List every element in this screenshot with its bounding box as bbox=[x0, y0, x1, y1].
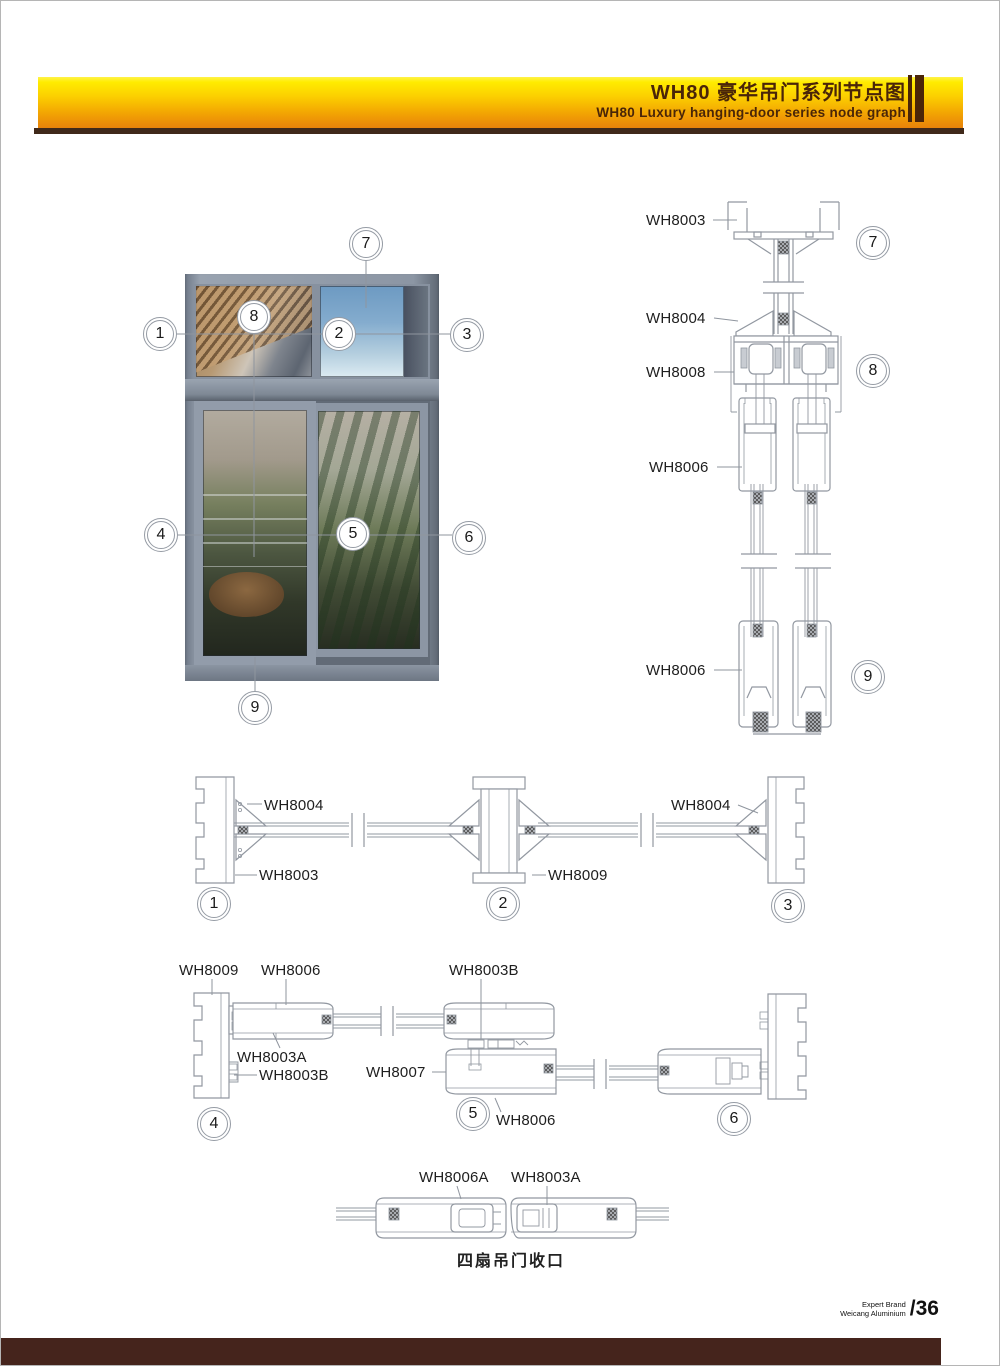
closeup-section-drawing bbox=[331, 1191, 671, 1247]
page-title: WH80 豪华吊门系列节点图 bbox=[596, 82, 906, 105]
profile-label: WH8004 bbox=[264, 797, 324, 814]
profile-label: WH8006 bbox=[649, 459, 709, 476]
header-underline bbox=[34, 128, 964, 134]
callout-1: 1 bbox=[143, 317, 177, 351]
brand-line1: Expert Brand bbox=[862, 1300, 906, 1309]
profile-label: WH8003A bbox=[511, 1169, 581, 1186]
brand-text: Expert Brand Weicang Aluminium bbox=[840, 1300, 906, 1318]
callout-2: 2 bbox=[322, 317, 356, 351]
mid-rail bbox=[185, 379, 439, 401]
profile-label: WH8003 bbox=[646, 212, 706, 229]
footer-bar bbox=[1, 1338, 941, 1366]
section-callout-8: 8 bbox=[856, 354, 890, 388]
callout-6: 6 bbox=[452, 521, 486, 555]
callout-4: 4 bbox=[144, 518, 178, 552]
section-callout-3: 3 bbox=[771, 889, 805, 923]
profile-label: WH8004 bbox=[671, 797, 731, 814]
table-reflection bbox=[209, 572, 284, 616]
profile-label: WH8007 bbox=[366, 1064, 426, 1081]
profile-label: WH8006 bbox=[646, 662, 706, 679]
profile-label: WH8006 bbox=[496, 1112, 556, 1129]
frame-reveal bbox=[404, 286, 428, 377]
door-sash-left bbox=[194, 401, 316, 665]
closeup-caption: 四扇吊门收口 bbox=[451, 1247, 571, 1271]
profile-label: WH8006A bbox=[419, 1169, 489, 1186]
page-number: /36 bbox=[910, 1297, 939, 1321]
callout-7: 7 bbox=[349, 227, 383, 261]
bottom-sill bbox=[185, 665, 439, 681]
profile-label: WH8003A bbox=[237, 1049, 307, 1066]
section-callout-9: 9 bbox=[851, 660, 885, 694]
window-photo bbox=[185, 274, 439, 681]
page-subtitle: WH80 Luxury hanging-door series node gra… bbox=[596, 105, 906, 121]
section-callout-1: 1 bbox=[197, 887, 231, 921]
section-callout-5: 5 bbox=[456, 1097, 490, 1131]
profile-label: WH8004 bbox=[646, 310, 706, 327]
section-callout-6: 6 bbox=[717, 1102, 751, 1136]
door-glass-left bbox=[203, 410, 307, 656]
railing-reflection bbox=[203, 494, 307, 568]
callout-9: 9 bbox=[238, 691, 272, 725]
profile-label: WH8003 bbox=[259, 867, 319, 884]
footer-info: Expert Brand Weicang Aluminium /36 bbox=[840, 1297, 939, 1321]
header-divider-bar-thin bbox=[908, 75, 912, 122]
catalog-page: WH80 豪华吊门系列节点图 WH80 Luxury hanging-door … bbox=[0, 0, 1000, 1366]
callout-5: 5 bbox=[336, 517, 370, 551]
profile-label: WH8008 bbox=[646, 364, 706, 381]
profile-label: WH8003B bbox=[449, 962, 519, 979]
brand-line2: Weicang Aluminium bbox=[840, 1309, 906, 1318]
transom-frame bbox=[194, 284, 430, 379]
header-divider-bar-thick bbox=[915, 75, 924, 122]
profile-label: WH8003B bbox=[259, 1067, 329, 1084]
profile-label: WH8006 bbox=[261, 962, 321, 979]
profile-label: WH8009 bbox=[548, 867, 608, 884]
callout-3: 3 bbox=[450, 318, 484, 352]
section-callout-4: 4 bbox=[197, 1107, 231, 1141]
header-titles: WH80 豪华吊门系列节点图 WH80 Luxury hanging-door … bbox=[596, 82, 906, 121]
sliding-door-area bbox=[194, 401, 430, 665]
section-callout-7: 7 bbox=[856, 226, 890, 260]
section-callout-2: 2 bbox=[486, 887, 520, 921]
header-band: WH80 豪华吊门系列节点图 WH80 Luxury hanging-door … bbox=[38, 77, 963, 128]
callout-8: 8 bbox=[237, 300, 271, 334]
profile-label: WH8009 bbox=[179, 962, 239, 979]
